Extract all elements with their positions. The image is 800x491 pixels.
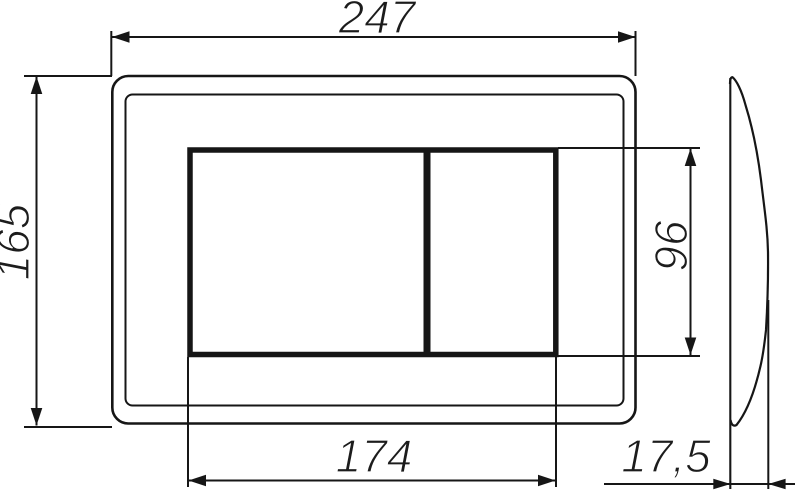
svg-text:174: 174 [336,430,413,482]
svg-text:247: 247 [338,0,417,43]
svg-text:17,5: 17,5 [621,430,711,482]
svg-text:96: 96 [645,220,697,272]
svg-text:165: 165 [0,203,39,280]
